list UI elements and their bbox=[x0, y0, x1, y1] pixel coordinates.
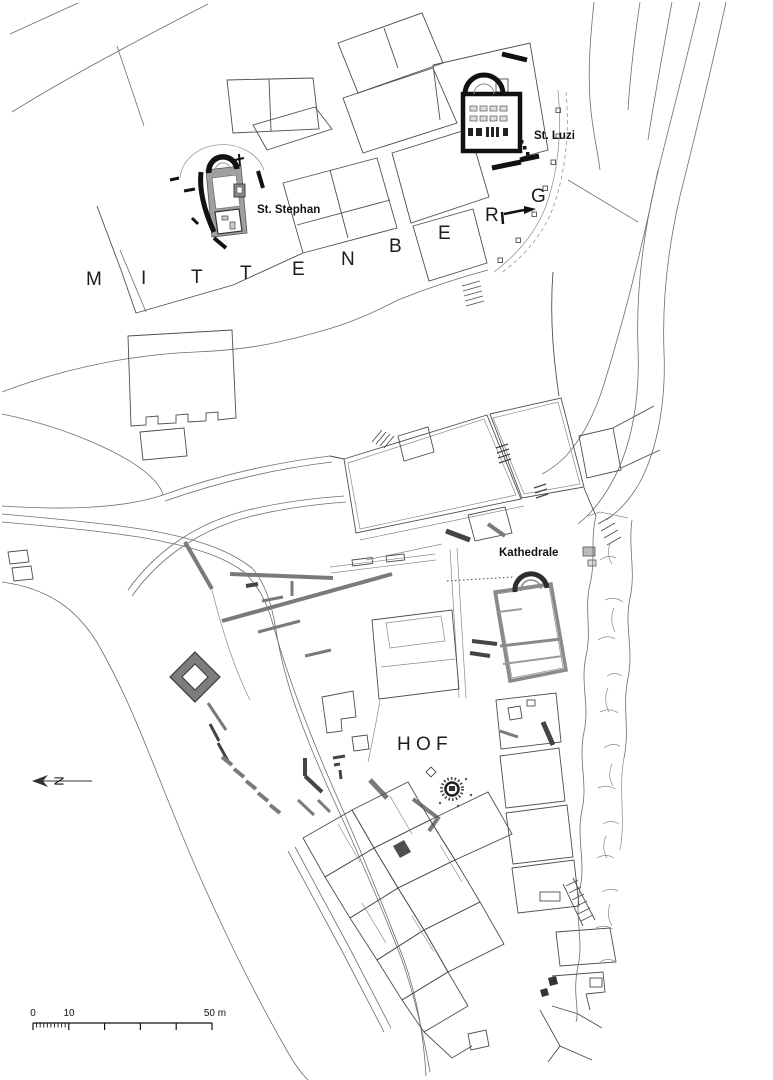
label-mittenberg-letter: R bbox=[485, 205, 499, 226]
cathedral bbox=[447, 547, 596, 698]
mittenberg-buildings bbox=[8, 13, 660, 581]
st-luzi-nave bbox=[463, 94, 520, 151]
north-label: N bbox=[52, 776, 67, 785]
label-hof: H O F bbox=[397, 734, 448, 755]
cliff-edge bbox=[576, 512, 633, 1022]
label-mittenberg-letter: G bbox=[531, 186, 546, 207]
site-plan-page: M I T T E N B E R G H O F St. Luzi St. S… bbox=[0, 0, 773, 1080]
east-cliff-buildings bbox=[496, 693, 616, 1062]
scale-label-50: 50 m bbox=[204, 1008, 226, 1019]
scale-bar: 0 10 50 m bbox=[30, 1008, 226, 1030]
label-kathedrale: Kathedrale bbox=[499, 547, 558, 559]
label-mittenberg-letter: T bbox=[240, 263, 252, 284]
scale-label-10: 10 bbox=[63, 1008, 75, 1019]
hof-north-buildings bbox=[330, 398, 596, 560]
church-st-luzi bbox=[463, 54, 539, 168]
scale-label-0: 0 bbox=[30, 1008, 36, 1019]
label-st-luzi: St. Luzi bbox=[534, 130, 575, 142]
site-plan-map: M I T T E N B E R G H O F St. Luzi St. S… bbox=[0, 0, 773, 1080]
dark-wall-fragment bbox=[393, 840, 411, 858]
label-mittenberg-letter: I bbox=[141, 268, 146, 289]
hof-plateau bbox=[170, 542, 472, 831]
label-st-stephan: St. Stephan bbox=[257, 204, 320, 216]
church-st-stephan bbox=[170, 145, 264, 248]
contour-roads bbox=[2, 2, 726, 1080]
south-quarter bbox=[288, 782, 512, 1058]
label-mittenberg-letter: M bbox=[86, 269, 102, 290]
label-mittenberg-letter: E bbox=[292, 259, 305, 280]
cathedral-nave bbox=[495, 584, 566, 681]
label-mittenberg-letter: N bbox=[341, 249, 355, 270]
label-mittenberg-letter: E bbox=[438, 223, 451, 244]
label-mittenberg-letter: T bbox=[191, 267, 203, 288]
label-mittenberg-letter: B bbox=[389, 236, 402, 257]
wall-arrow bbox=[524, 206, 536, 214]
north-arrow: N bbox=[32, 775, 92, 787]
region-labels: M I T T E N B E R G H O F St. Luzi St. S… bbox=[86, 130, 575, 755]
scale-ticks bbox=[33, 1023, 212, 1030]
